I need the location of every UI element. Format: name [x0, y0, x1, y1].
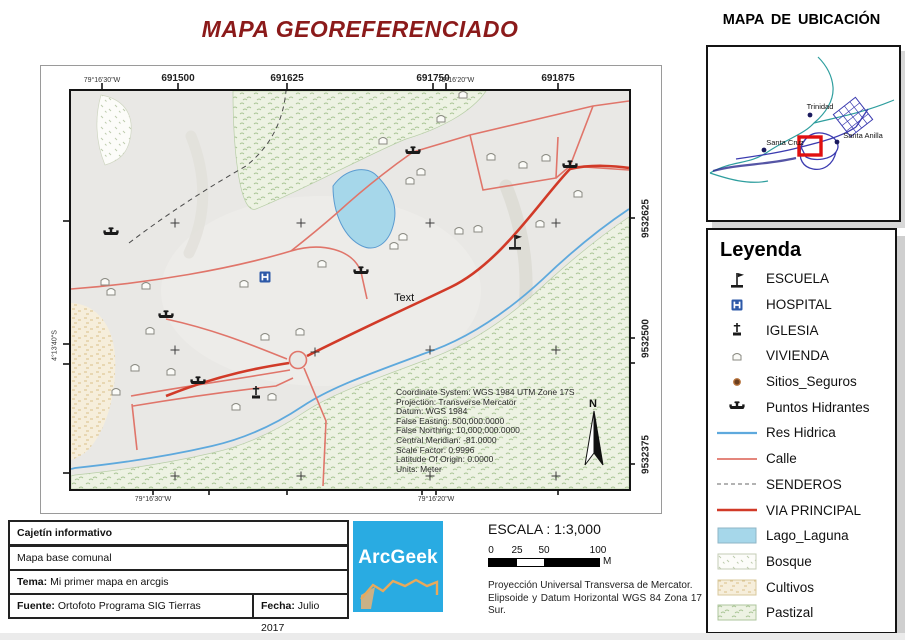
scale-title: ESCALA : 1:3,000 [488, 521, 601, 537]
axis-label-right-utm1: 9532625 [641, 188, 652, 250]
scalebar-tick-100: 100 [590, 545, 607, 556]
info-box: Cajetín informativo Mapa base comunal Te… [8, 520, 349, 619]
arcgeek-logo: ArcGeek [353, 521, 443, 612]
legend-item-senderos: SENDEROS [708, 472, 895, 498]
legend-item-res-hidrica: Res Hidrica [708, 420, 895, 446]
coordinate-system-info: Coordinate System: WGS 1984 UTM Zone 17S… [396, 388, 592, 474]
legend-title: Leyenda [708, 230, 895, 266]
hospital-icon [708, 297, 766, 313]
info-box-tema: Tema: Mi primer mapa en arcgis [10, 571, 347, 595]
legend-item-iglesia: IGLESIA [708, 317, 895, 343]
crops-swatch-icon [708, 579, 766, 596]
town-label-trinidad: Trinidad [807, 102, 834, 111]
main-map-container: 79°16'30"W 691500 691625 691750 79°16'20… [40, 65, 662, 514]
main-road-line-icon [708, 507, 766, 513]
town-label-santa-cruz: Santa Cruz [766, 138, 804, 147]
info-box-fuente-fecha: Fuente: Ortofoto Programa SIG Tierras Fe… [10, 595, 347, 617]
church-icon [708, 320, 766, 340]
axis-label-top-utm1: 691500 [147, 73, 209, 84]
map-text-annotation: Text [394, 292, 414, 304]
info-box-subtitle: Mapa base comunal [10, 547, 347, 571]
scalebar-tick-25: 25 [511, 545, 522, 556]
street-line-icon [708, 456, 766, 462]
legend-item-bosque: Bosque [708, 549, 895, 575]
scalebar-tick-50: 50 [538, 545, 549, 556]
axis-label-top-utm4: 691875 [527, 73, 589, 84]
scalebar-tick-0: 0 [488, 545, 494, 556]
scalebar-unit: M [603, 556, 611, 567]
page-title: MAPA GEOREFERENCIADO [110, 16, 610, 43]
arcgeek-logo-text: ArcGeek [353, 547, 443, 569]
location-map: Trinidad Santa Cruz Santa Anilla [706, 45, 901, 222]
grassland-swatch-icon [708, 604, 766, 621]
location-main-channel [713, 158, 796, 171]
page-bottom-edge [0, 633, 905, 640]
info-box-fecha: Fecha: Julio 2017 [254, 595, 347, 617]
location-map-title: MAPA DE UBICACIÓN [706, 12, 897, 28]
scalebar [488, 558, 600, 567]
lake-swatch-icon [708, 527, 766, 544]
school-flag-icon [708, 269, 766, 289]
projection-note: Proyección Universal Transversa de Merca… [488, 580, 702, 618]
legend-panel: Leyenda ESCUELA HOSPITAL IGLESIA VIVIEND… [706, 228, 897, 634]
trail-dashed-line-icon [708, 481, 766, 487]
info-box-header: Cajetín informativo [10, 522, 347, 547]
legend-item-escuela: ESCUELA [708, 266, 895, 292]
axis-label-left-geo: 4°13'40"S [52, 315, 59, 377]
map-canvas: Text N Coordinate System: WGS 1984 UTM Z… [69, 89, 631, 491]
town-label-santa-anilla: Santa Anilla [843, 131, 883, 140]
legend-item-vivienda: VIVIENDA [708, 343, 895, 369]
info-box-fuente: Fuente: Ortofoto Programa SIG Tierras [10, 595, 254, 617]
legend-item-via-principal: VIA PRINCIPAL [708, 497, 895, 523]
axis-label-top-utm2: 691625 [256, 73, 318, 84]
legend-item-pastizal: Pastizal [708, 600, 895, 626]
roundabout [290, 352, 307, 369]
legend-item-calle: Calle [708, 446, 895, 472]
axis-label-bottom-geo-right: 79°16'20"W [405, 496, 467, 503]
legend-item-lago-laguna: Lago_Laguna [708, 523, 895, 549]
house-icon [708, 349, 766, 363]
axis-label-right-utm3: 9532375 [641, 424, 652, 486]
safe-site-dot-icon [708, 376, 766, 388]
legend-item-cultivos: Cultivos [708, 574, 895, 600]
legend-item-hospital: HOSPITAL [708, 292, 895, 318]
axis-label-top-geo-right: 79°16'20"W [425, 77, 487, 84]
hydrant-icon [708, 400, 766, 414]
arcgeek-logo-ridge-icon [353, 573, 443, 612]
location-rivers [710, 57, 894, 182]
hospital-icon-map [260, 272, 271, 283]
forest-swatch-icon [708, 553, 766, 570]
axis-label-right-utm2: 9532500 [641, 308, 652, 370]
water-line-icon [708, 430, 766, 436]
axis-label-top-geo-left: 79°16'30"W [71, 77, 133, 84]
axis-label-bottom-geo-left: 79°16'30"W [122, 496, 184, 503]
legend-item-sitios-seguros: Sitios_Seguros [708, 369, 895, 395]
legend-item-puntos-hidrantes: Puntos Hidrantes [708, 394, 895, 420]
